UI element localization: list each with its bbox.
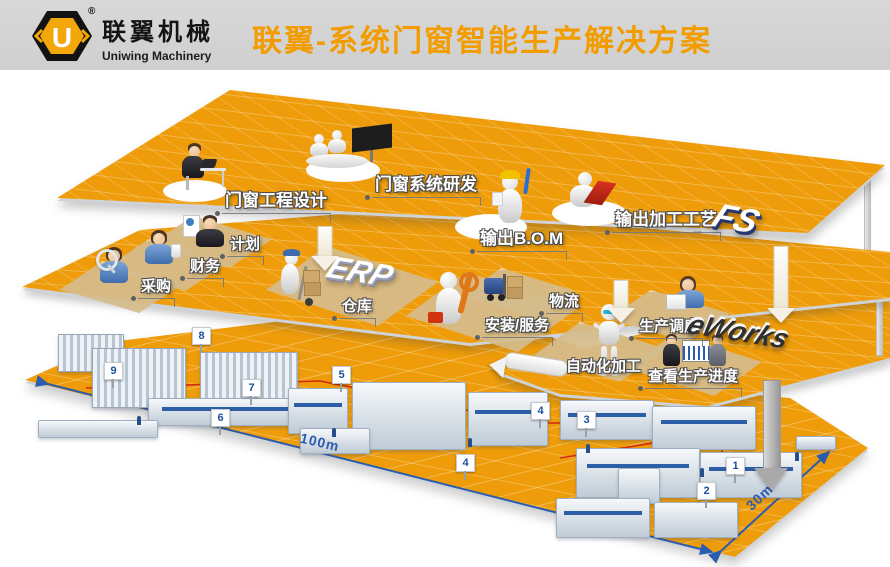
machine-graphic [796, 436, 836, 450]
purchaser-icon [96, 247, 142, 295]
planner-icon [183, 215, 225, 253]
machine-graphic [652, 406, 756, 450]
machine-graphic [654, 502, 738, 538]
installer-icon [428, 272, 482, 336]
station-sign: 6 [211, 409, 230, 427]
bom-worker-icon [492, 168, 546, 228]
laptop-worker-icon [556, 172, 616, 218]
down-arrow [767, 246, 795, 324]
label-warehouse: 仓库 [339, 295, 375, 319]
solution-diagram: U ® 联翼机械 Uniwing Machinery 联翼-系统门窗智能生产解决… [0, 0, 890, 567]
label-install-service: 安装/服务 [482, 314, 552, 338]
label-purchase: 采购 [138, 275, 174, 299]
station-sign: 1 [726, 457, 745, 475]
worker-figure [468, 438, 472, 447]
finance-icon [143, 230, 185, 272]
machine-graphic [556, 498, 650, 538]
station-sign: 5 [332, 366, 351, 384]
label-finance: 财务 [187, 255, 223, 279]
station-sign: 8 [192, 327, 211, 345]
label-logistics: 物流 [546, 290, 582, 314]
brand-name-cn: 联翼机械 [102, 12, 214, 47]
label-output-craft: 输出加工工艺 [612, 205, 720, 233]
label-door-system-rnd: 门窗系统研发 [372, 170, 480, 198]
svg-text:U: U [52, 22, 72, 53]
label-automated-processing: 自动化加工 [563, 355, 644, 378]
worker-figure [137, 416, 141, 425]
to-line-arrow-head [487, 354, 506, 378]
to-floor-arrow-head [754, 468, 788, 490]
page-title: 联翼-系统门窗智能生产解决方案 [252, 16, 712, 60]
fs-badge: FS [706, 197, 765, 241]
header-bar: U ® 联翼机械 Uniwing Machinery 联翼-系统门窗智能生产解决… [0, 0, 890, 70]
brand-name-en: Uniwing Machinery [102, 49, 214, 63]
label-door-engineering-design: 门窗工程设计 [222, 186, 330, 214]
station-sign: 3 [577, 411, 596, 429]
station-sign: 4 [531, 402, 550, 420]
label-output-bom: 输出B.O.M [477, 224, 566, 252]
brand-text: 联翼机械 Uniwing Machinery [102, 12, 214, 63]
uniwing-logo-icon: U [30, 8, 94, 64]
to-floor-arrow-shaft [763, 380, 781, 472]
station-sign: 7 [242, 379, 261, 397]
worker-figure [700, 468, 704, 477]
machine-graphic [560, 400, 654, 440]
support-leg [876, 300, 883, 356]
registered-mark: ® [88, 6, 95, 17]
worker-figure [795, 452, 799, 461]
station-sign: 9 [104, 362, 123, 380]
worker-figure [332, 428, 336, 437]
label-view-progress: 查看生产进度 [645, 365, 741, 389]
station-sign: 4 [456, 454, 475, 472]
worker-figure [586, 444, 590, 453]
station-sign: 2 [697, 482, 716, 500]
support-leg [864, 172, 871, 260]
down-arrow [607, 280, 635, 324]
forklift-icon [484, 274, 536, 308]
label-plan: 计划 [227, 233, 263, 257]
